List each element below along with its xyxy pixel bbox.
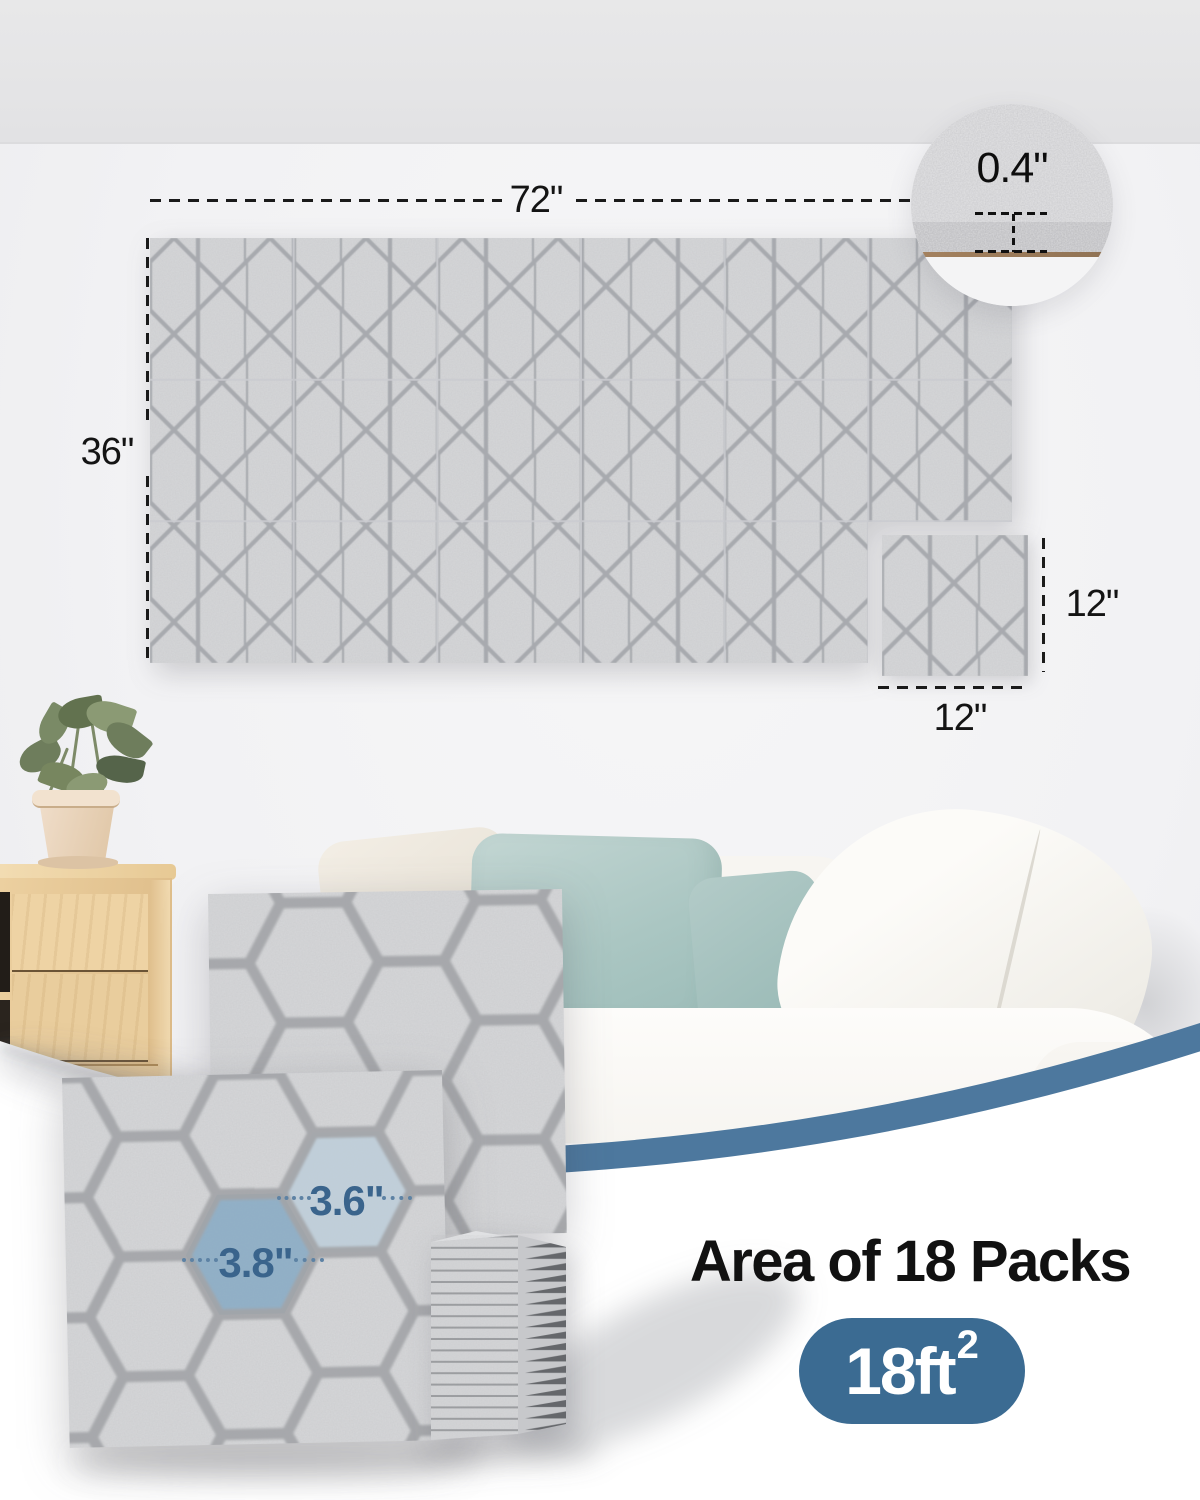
area-badge: 18ft2	[799, 1318, 1025, 1424]
dim-label-thickness: 0.4"	[911, 144, 1113, 193]
thickness-bracket-top	[975, 212, 1047, 215]
dim-label-12-width: 12"	[918, 698, 1002, 738]
plant-pot-saucer	[38, 856, 118, 869]
hex-large-leader-right	[294, 1258, 324, 1262]
dim-label-36: 36"	[72, 432, 142, 472]
nightstand-drawer-bottom	[12, 974, 148, 1062]
nightstand-gap	[0, 892, 10, 992]
product-infographic: 72" 36" 12" 12" 0.4"	[0, 0, 1200, 1500]
dim-line-72-right	[576, 199, 910, 202]
hex-label-large: 3.8"	[208, 1239, 303, 1287]
thickness-bracket-bottom	[975, 250, 1047, 253]
dim-label-72: 72"	[504, 180, 568, 220]
hex-label-small: 3.6"	[299, 1177, 394, 1225]
panel-stack	[428, 1226, 570, 1444]
plant-pot	[36, 802, 118, 862]
nightstand-drawer-top	[12, 894, 148, 972]
dim-line-72-left	[150, 199, 502, 202]
hex-small-leader-right	[382, 1196, 412, 1200]
single-tile-12x12	[882, 535, 1028, 676]
plant-pot-rim	[32, 790, 120, 808]
dim-line-36-top	[146, 238, 149, 428]
dim-line-12-horizontal	[878, 686, 1030, 689]
thickness-bracket-mid	[1012, 214, 1015, 252]
dim-line-12-vertical	[1042, 538, 1045, 672]
dim-line-36-bottom	[146, 476, 149, 666]
area-heading: Area of 18 Packs	[660, 1228, 1160, 1295]
badge-exponent: 2	[957, 1323, 979, 1368]
badge-value: 18ft	[845, 1333, 954, 1409]
dim-label-12-height: 12"	[1056, 584, 1128, 624]
inset-background	[911, 257, 1113, 306]
thickness-inset: 0.4"	[911, 104, 1113, 306]
